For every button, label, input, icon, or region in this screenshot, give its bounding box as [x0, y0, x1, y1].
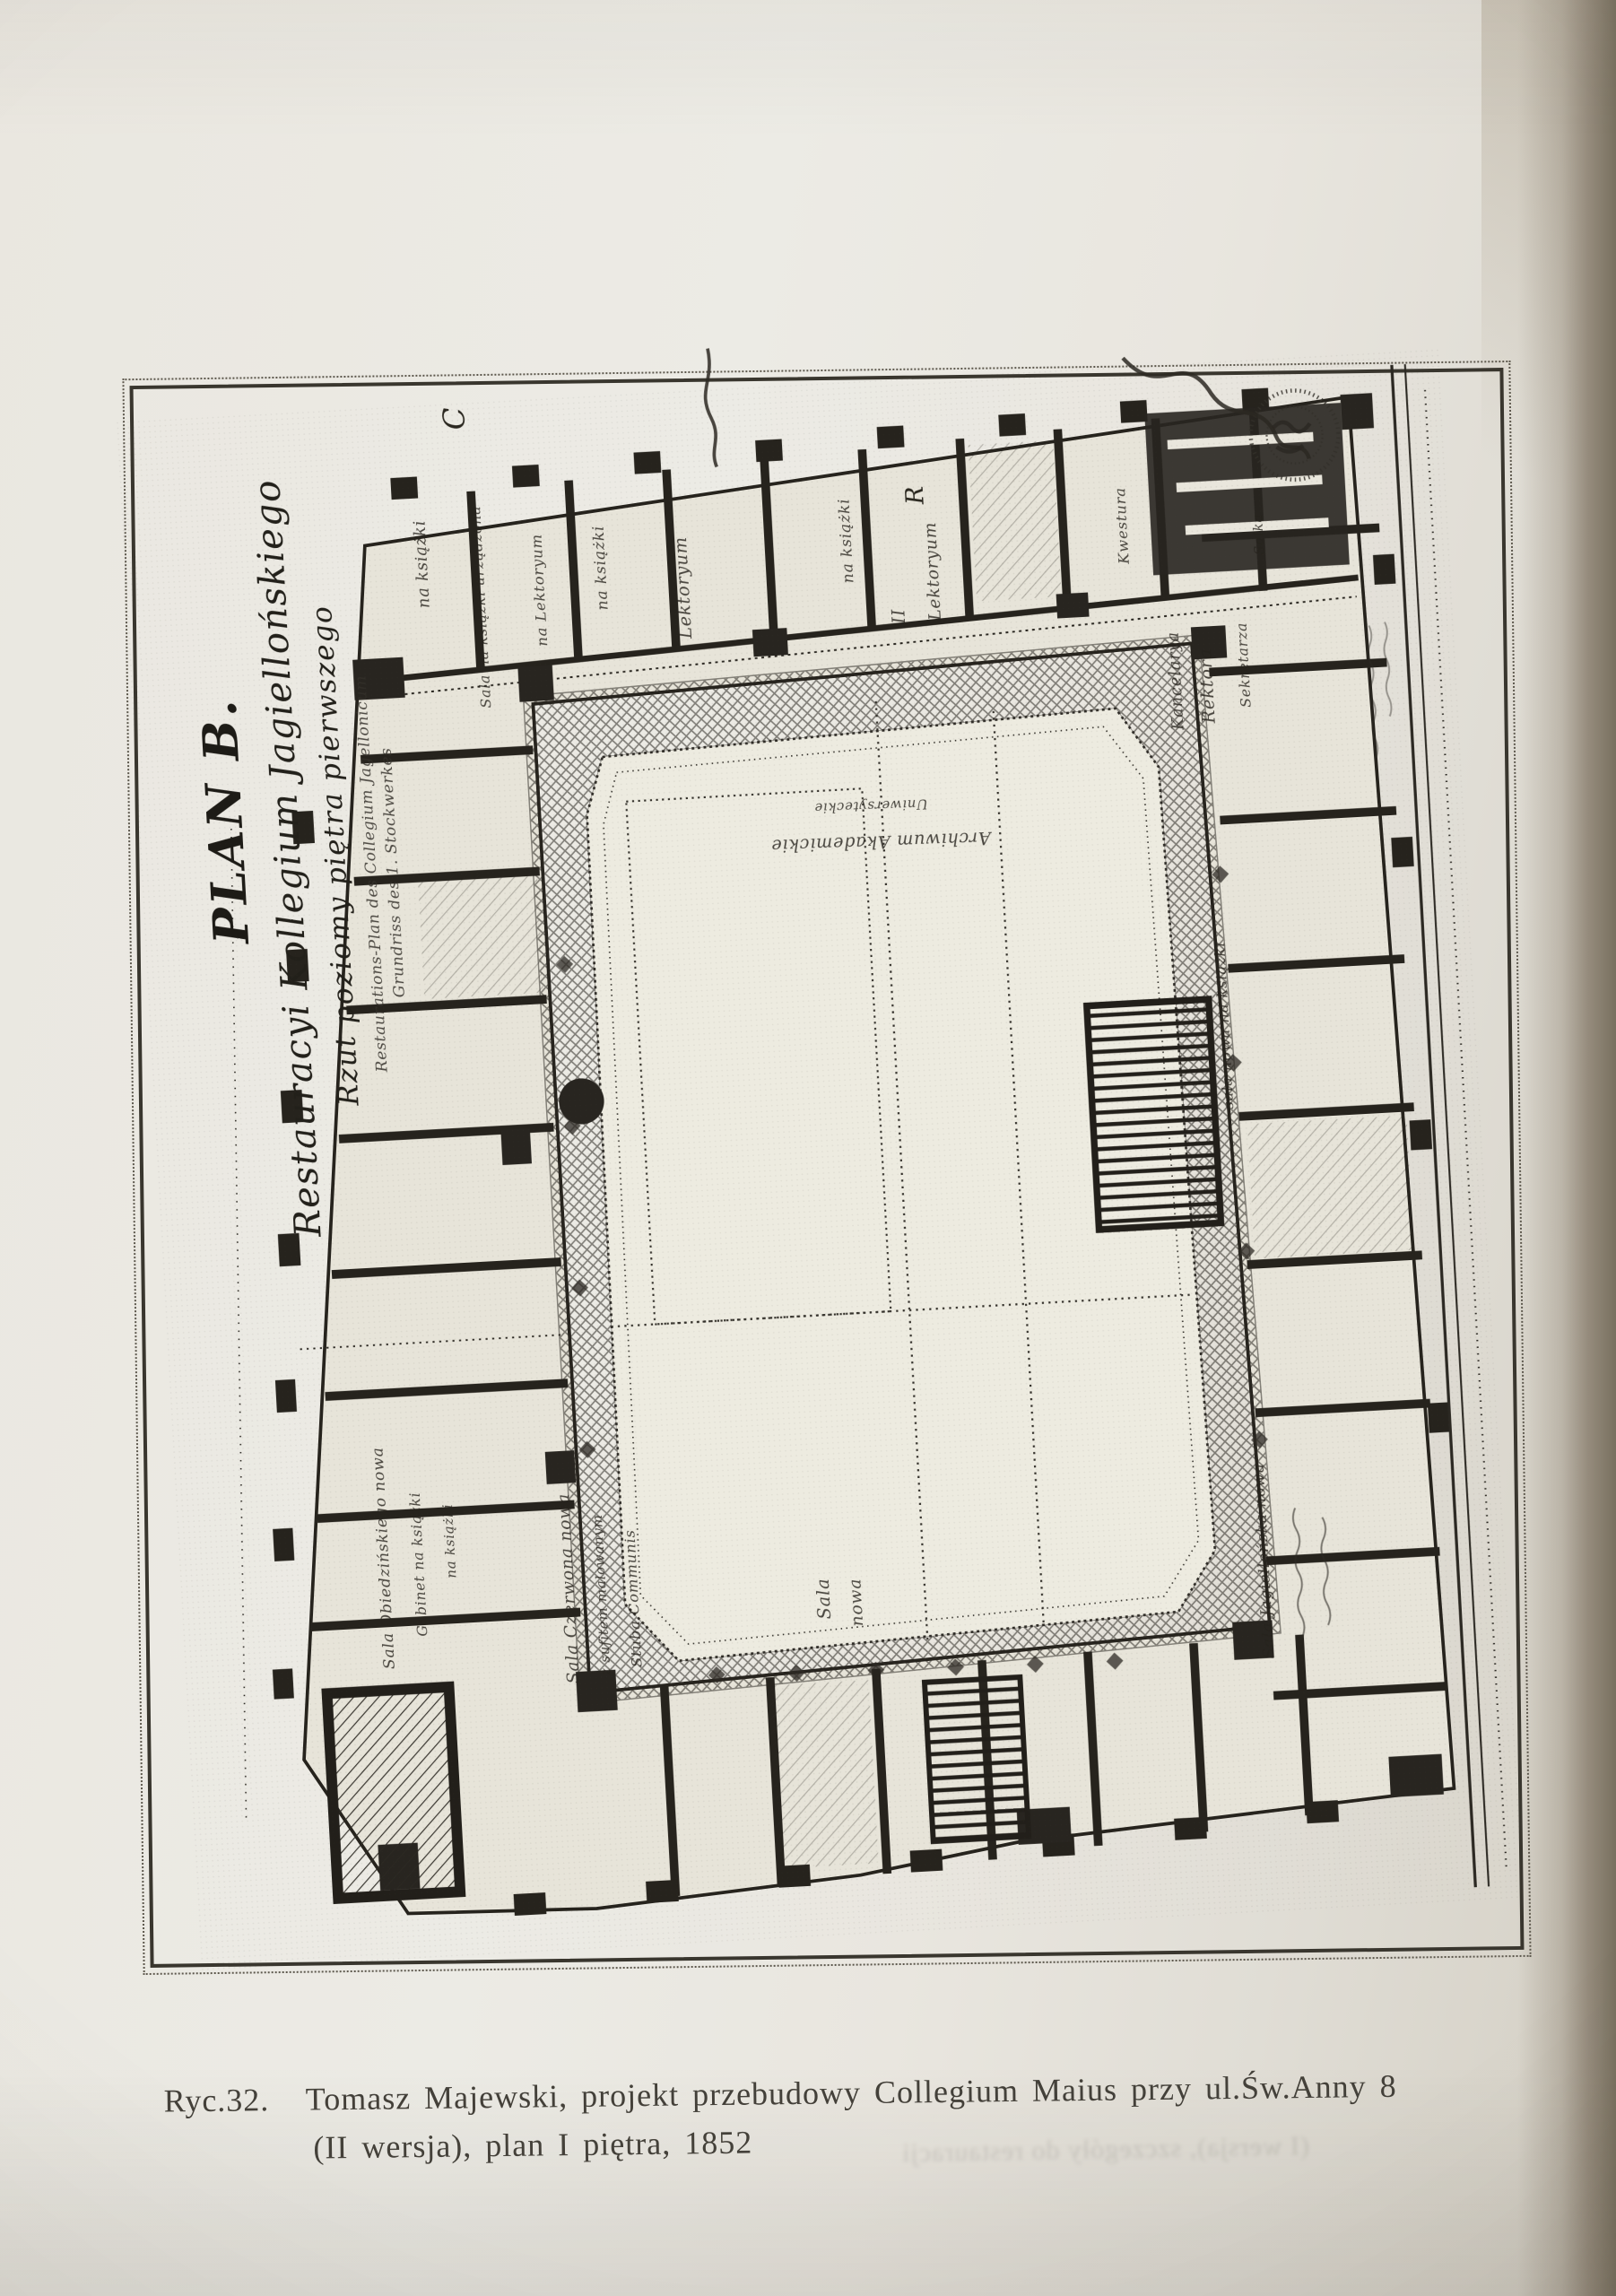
figure-number: Ryc.32. [163, 2075, 306, 2126]
figure-caption: Ryc.32.Tomasz Majewski, projekt przebudo… [163, 2059, 1568, 2173]
halftone-texture [116, 349, 1526, 1971]
show-through-text: (I wersja), szczegóły do restauracji [901, 2131, 1309, 2169]
caption-text: Tomasz Majewski, projekt przebudowy Coll… [305, 2068, 1396, 2118]
book-page-photo: PLAN B. Restauracyi Kollegium Jagiellońs… [0, 0, 1616, 2296]
figure-frame: PLAN B. Restauracyi Kollegium Jagiellońs… [130, 368, 1525, 1968]
floor-plan: PLAN B. Restauracyi Kollegium Jagiellońs… [116, 349, 1526, 1971]
floor-plan-drawing: PLAN B. Restauracyi Kollegium Jagiellońs… [116, 349, 1526, 1971]
book-edge-shadow [1517, 0, 1616, 2296]
